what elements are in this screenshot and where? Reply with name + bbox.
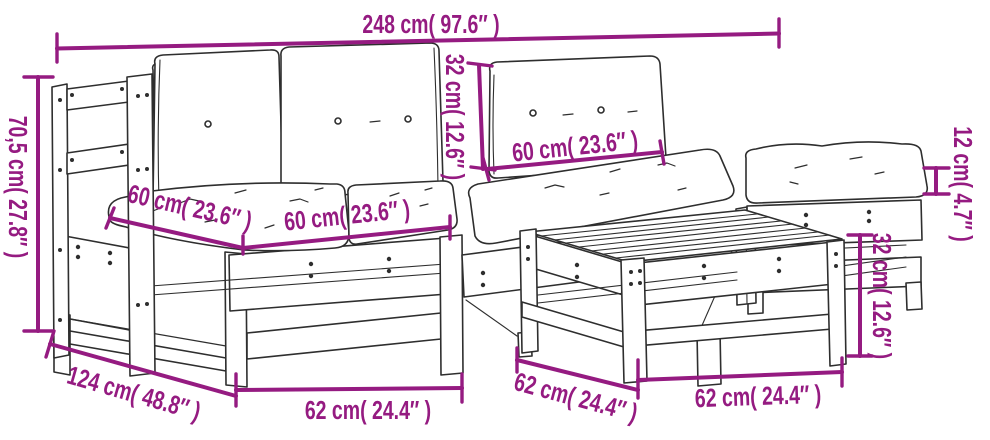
dim-cushion-thickness-label: 12 cm( 4.7″ ) — [948, 126, 977, 242]
dim-table-depth: 62 cm( 24.4″ ) — [511, 348, 641, 428]
dim-overall-height: 70,5 cm( 27.8″ ) — [3, 77, 53, 331]
dim-seat-height-label: 32 cm( 12.6″ ) — [867, 233, 896, 359]
dim-back-cushion-height: 32 cm( 12.6″ ) — [440, 54, 495, 180]
dim-seat-height: 32 cm( 12.6″ ) — [848, 233, 897, 359]
product-dimension-diagram: 248 cm( 97.6″ ) 70,5 cm( 27.8″ ) 32 cm( … — [0, 0, 990, 440]
lounge-set-diagram: 248 cm( 97.6″ ) 70,5 cm( 27.8″ ) 32 cm( … — [0, 0, 990, 440]
dim-section-width-label: 62 cm( 24.4″ ) — [305, 395, 431, 424]
dim-table-width: 62 cm( 24.4″ ) — [638, 358, 842, 413]
dim-overall-height-label: 70,5 cm( 27.8″ ) — [3, 116, 32, 259]
dim-section-width: 62 cm( 24.4″ ) — [236, 374, 462, 425]
dim-overall-width-label: 248 cm( 97.6″ ) — [362, 9, 499, 38]
dim-back-cushion-height-label: 32 cm( 12.6″ ) — [440, 54, 469, 180]
dim-cushion-thickness: 12 cm( 4.7″ ) — [924, 126, 978, 242]
coffee-table — [520, 210, 846, 383]
dim-table-width-label: 62 cm( 24.4″ ) — [694, 379, 821, 413]
